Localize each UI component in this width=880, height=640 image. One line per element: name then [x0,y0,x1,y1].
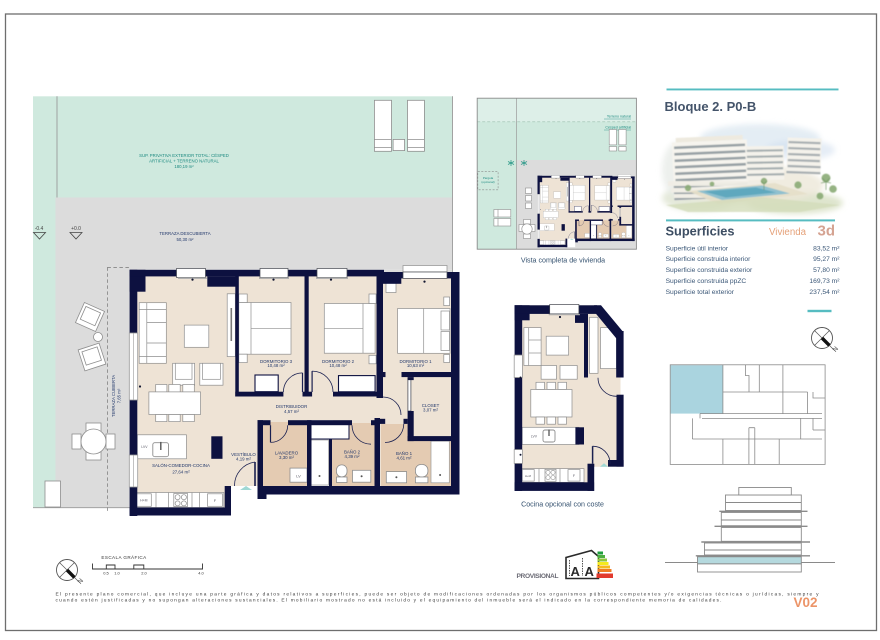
svg-text:N: N [832,345,841,353]
svg-text:A: A [585,564,595,579]
svg-text:LVV: LVV [531,435,538,439]
svg-text:57,80 m²: 57,80 m² [813,267,840,274]
svg-text:4.0: 4.0 [198,571,204,576]
svg-text:-0.4: -0.4 [35,226,44,232]
svg-text:TERRAZA CUBIERTA: TERRAZA CUBIERTA [111,375,116,417]
svg-text:4,61 m²: 4,61 m² [397,456,412,461]
svg-text:cuando estén justificadas y no: cuando estén justificadas y no supongan … [56,598,722,604]
svg-text:Vista completa de vivienda: Vista completa de vivienda [521,257,605,265]
svg-text:10,48 m²: 10,48 m² [329,363,347,368]
svg-text:H+M: H+M [525,474,532,478]
svg-text:Vivienda: Vivienda [769,227,807,238]
svg-text:SALÓN-COMEDOR-COCINA: SALÓN-COMEDOR-COCINA [152,463,210,468]
svg-text:Bloque 2. P0-B: Bloque 2. P0-B [665,99,757,114]
svg-text:237,54 m²: 237,54 m² [809,289,840,296]
svg-text:ESCALA GRÁFICA: ESCALA GRÁFICA [101,554,147,560]
svg-text:H+M: H+M [140,499,147,503]
svg-text:(opcional): (opcional) [481,180,494,184]
svg-text:1.0: 1.0 [114,571,120,576]
svg-text:Superficie construida ppZC: Superficie construida ppZC [666,278,747,285]
svg-text:Superficie construida interior: Superficie construida interior [666,256,752,263]
svg-text:0.5: 0.5 [103,571,109,576]
svg-text:Césped artificial: Césped artificial [605,126,631,130]
svg-text:2.0: 2.0 [141,571,147,576]
svg-text:ARTIFICIAL + TERRENO NATURAL: ARTIFICIAL + TERRENO NATURAL [149,159,219,164]
svg-text:A: A [571,564,581,579]
svg-text:4,57 m²: 4,57 m² [284,409,299,414]
svg-text:Cocina opcional con coste: Cocina opcional con coste [521,501,604,509]
svg-text:+0.0: +0.0 [71,226,81,232]
svg-text:27,64 m²: 27,64 m² [172,470,190,475]
svg-text:Superficie total exterior: Superficie total exterior [666,289,735,296]
svg-text:4,39 m²: 4,39 m² [345,454,360,459]
svg-text:95,27 m²: 95,27 m² [813,256,840,263]
svg-text:Superficie útil interior: Superficie útil interior [666,245,729,252]
svg-text:180,19 m²: 180,19 m² [174,164,194,169]
svg-text:El presente plano comercial, q: El presente plano comercial, que incluye… [56,592,820,598]
svg-text:LVV: LVV [141,445,148,449]
svg-text:169,73 m²: 169,73 m² [809,278,840,285]
svg-text:N: N [77,577,86,585]
svg-text:Superficie construida exterior: Superficie construida exterior [666,267,753,274]
svg-text:4,19 m²: 4,19 m² [236,457,251,462]
svg-text:Terreno natural: Terreno natural [607,115,631,119]
svg-text:83,52 m²: 83,52 m² [813,245,840,252]
svg-text:3,30 m²: 3,30 m² [279,455,294,460]
svg-text:3,07 m²: 3,07 m² [423,408,438,413]
svg-text:50,30 m²: 50,30 m² [177,237,195,242]
svg-text:PROVISIONAL: PROVISIONAL [517,573,559,580]
svg-text:10,48 m²: 10,48 m² [267,363,285,368]
svg-text:TERRAZA DESCUBIERTA: TERRAZA DESCUBIERTA [159,231,210,236]
svg-text:Superficies: Superficies [666,224,735,239]
svg-text:7,65 m²: 7,65 m² [117,388,122,403]
svg-text:10,63 m²: 10,63 m² [407,363,425,368]
svg-text:3d: 3d [817,223,835,240]
svg-text:LV: LV [296,473,301,478]
svg-text:SUP. PRIVATIVA EXTERIOR TOTAL:: SUP. PRIVATIVA EXTERIOR TOTAL: CÉSPED [139,153,229,158]
